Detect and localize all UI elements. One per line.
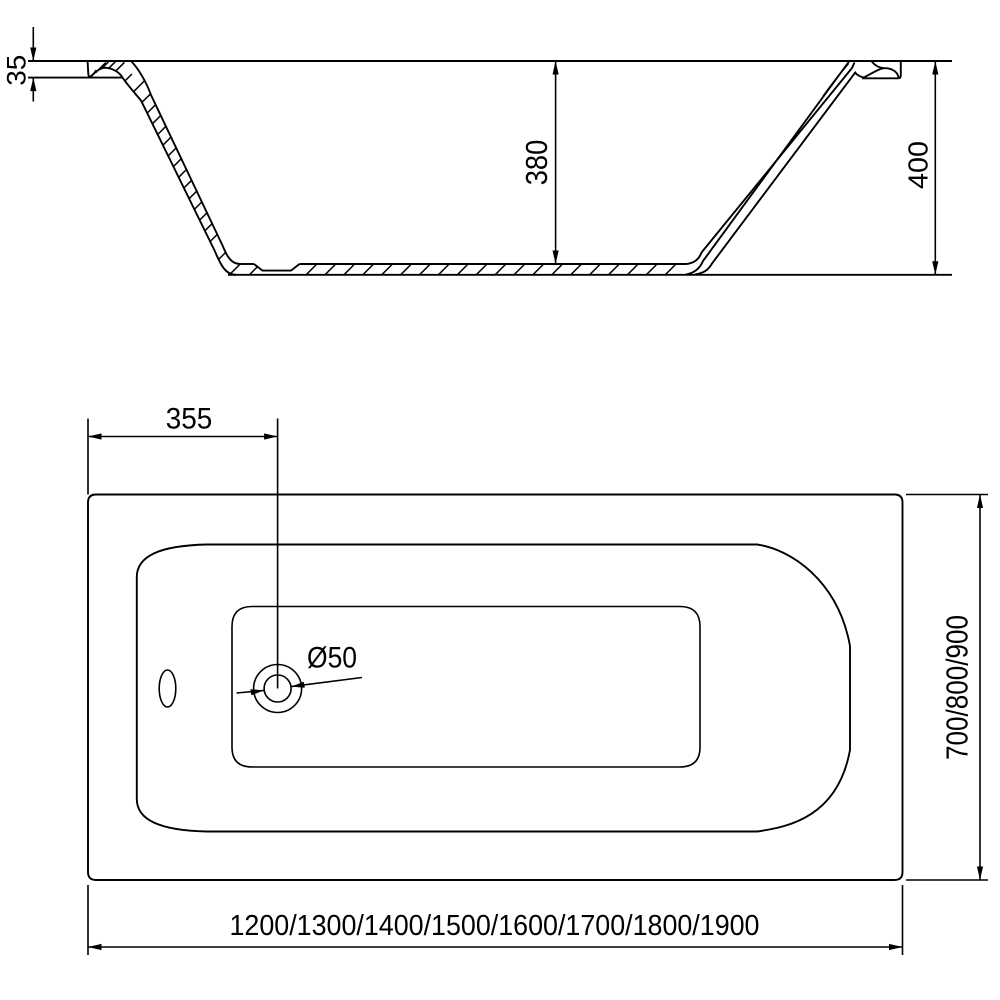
svg-text:35: 35 (1, 55, 31, 86)
svg-text:355: 355 (166, 403, 213, 436)
svg-text:380: 380 (519, 140, 554, 186)
svg-text:Ø50: Ø50 (307, 642, 357, 675)
svg-text:400: 400 (902, 141, 933, 189)
svg-text:700/800/900: 700/800/900 (940, 615, 975, 760)
svg-text:1200/1300/1400/1500/1600/1700/: 1200/1300/1400/1500/1600/1700/1800/1900 (230, 910, 760, 942)
